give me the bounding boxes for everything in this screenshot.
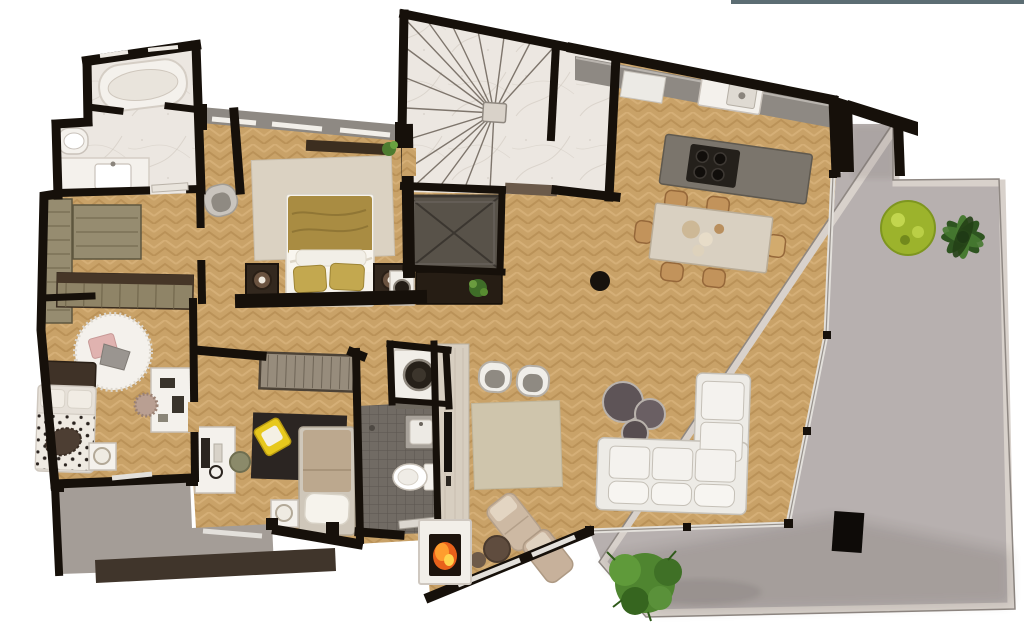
fireplace — [419, 520, 471, 584]
armchair — [516, 365, 550, 397]
stair-newel-post — [482, 102, 506, 123]
lamp-bed2 — [94, 448, 110, 464]
desk-bed2 — [151, 368, 191, 432]
terrace-pillar — [832, 511, 865, 553]
pillow-left — [293, 265, 327, 293]
screen-edge-artifact — [731, 0, 1024, 4]
bed-3 — [299, 427, 355, 535]
tv-screen — [444, 412, 452, 472]
pillow-right — [329, 263, 364, 291]
chair-bed3 — [230, 452, 250, 472]
dining-chair — [660, 262, 684, 283]
toilet-master — [58, 128, 88, 154]
closet-bed3 — [259, 352, 354, 391]
black-stool — [590, 271, 610, 291]
pouf — [484, 536, 510, 562]
tv-panel — [437, 344, 469, 524]
lamp-bed3 — [276, 505, 292, 521]
floorplan-screenshot — [0, 0, 1024, 635]
floorplan-canvas — [0, 0, 1024, 635]
media-wall — [437, 344, 469, 524]
elevator — [408, 196, 500, 270]
living-rug — [472, 400, 563, 489]
shower-drain — [369, 425, 375, 431]
dining-chair — [702, 268, 726, 289]
armchair — [478, 361, 512, 393]
wardrobe-band — [57, 273, 194, 309]
staircase-floor — [403, 14, 616, 196]
bush-bright — [881, 201, 935, 255]
monitor — [201, 438, 210, 468]
master-bed — [286, 194, 374, 306]
chair-bed2 — [135, 394, 157, 416]
toilet-bath2 — [393, 464, 436, 490]
cabinet — [416, 272, 502, 304]
cooktop — [686, 144, 741, 189]
